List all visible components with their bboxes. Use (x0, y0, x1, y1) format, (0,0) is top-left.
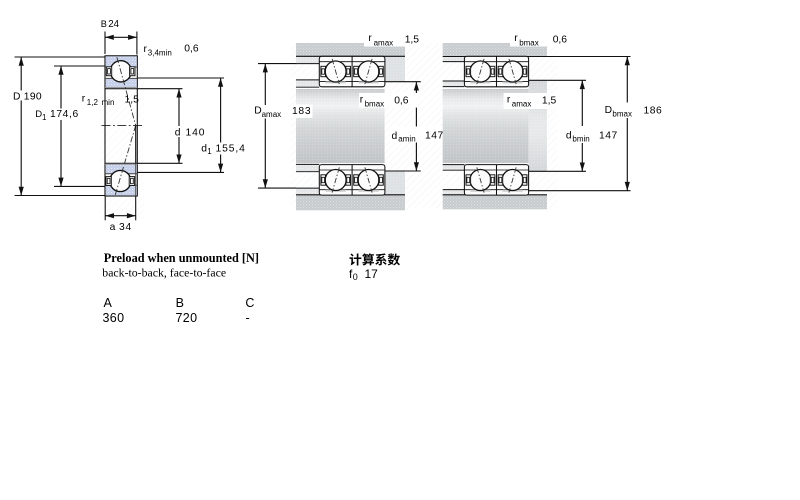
svg-text:1,2: 1,2 (87, 98, 99, 107)
svg-text:1: 1 (42, 113, 47, 122)
svg-text:D: D (13, 91, 20, 102)
svg-text:0,6: 0,6 (184, 44, 199, 55)
svg-text:-: - (246, 311, 250, 325)
svg-text:3,4min: 3,4min (148, 49, 172, 58)
svg-text:min: min (102, 98, 115, 107)
svg-text:720: 720 (176, 311, 198, 325)
svg-text:34: 34 (119, 222, 132, 233)
svg-text:17: 17 (365, 267, 379, 281)
svg-text:r: r (507, 95, 511, 106)
svg-text:amax: amax (374, 39, 394, 48)
svg-text:147: 147 (599, 131, 618, 142)
svg-text:B: B (176, 296, 184, 310)
svg-text:d: d (175, 127, 181, 138)
svg-text:186: 186 (644, 106, 663, 117)
svg-text:1,5: 1,5 (405, 35, 420, 46)
svg-text:amin: amin (398, 135, 415, 144)
svg-text:155,4: 155,4 (216, 144, 246, 155)
svg-text:B: B (101, 19, 107, 29)
svg-text:amax: amax (512, 99, 532, 108)
svg-text:a: a (110, 222, 116, 233)
svg-text:190: 190 (24, 91, 42, 102)
svg-text:183: 183 (292, 106, 311, 117)
svg-text:back-to-back, face-to-face: back-to-back, face-to-face (102, 265, 226, 279)
svg-text:140: 140 (186, 127, 206, 138)
svg-text:bmax: bmax (612, 110, 632, 119)
svg-text:bmin: bmin (572, 135, 589, 144)
svg-text:D: D (605, 105, 612, 116)
svg-text:174,6: 174,6 (50, 109, 79, 120)
svg-text:r: r (360, 95, 364, 106)
svg-text:1,5: 1,5 (125, 94, 140, 105)
svg-text:bmax: bmax (365, 99, 385, 108)
svg-text:amax: amax (262, 110, 282, 119)
svg-text:r: r (514, 33, 518, 44)
svg-text:C: C (245, 296, 254, 310)
svg-text:1,5: 1,5 (542, 96, 557, 107)
svg-text:D: D (254, 106, 261, 117)
svg-text:Preload when unmounted [N]: Preload when unmounted [N] (104, 251, 259, 265)
svg-text:24: 24 (108, 19, 119, 30)
svg-text:r: r (82, 93, 86, 104)
svg-text:r: r (368, 33, 372, 44)
svg-text:360: 360 (103, 311, 125, 325)
svg-text:1: 1 (207, 147, 212, 156)
svg-text:d: d (392, 131, 398, 142)
svg-text:d: d (566, 131, 572, 142)
svg-text:bmax: bmax (519, 39, 539, 48)
svg-text:0,6: 0,6 (394, 96, 409, 107)
svg-text:0: 0 (353, 272, 358, 282)
svg-text:A: A (104, 296, 113, 310)
svg-text:147: 147 (425, 131, 444, 142)
svg-text:0,6: 0,6 (553, 35, 568, 46)
